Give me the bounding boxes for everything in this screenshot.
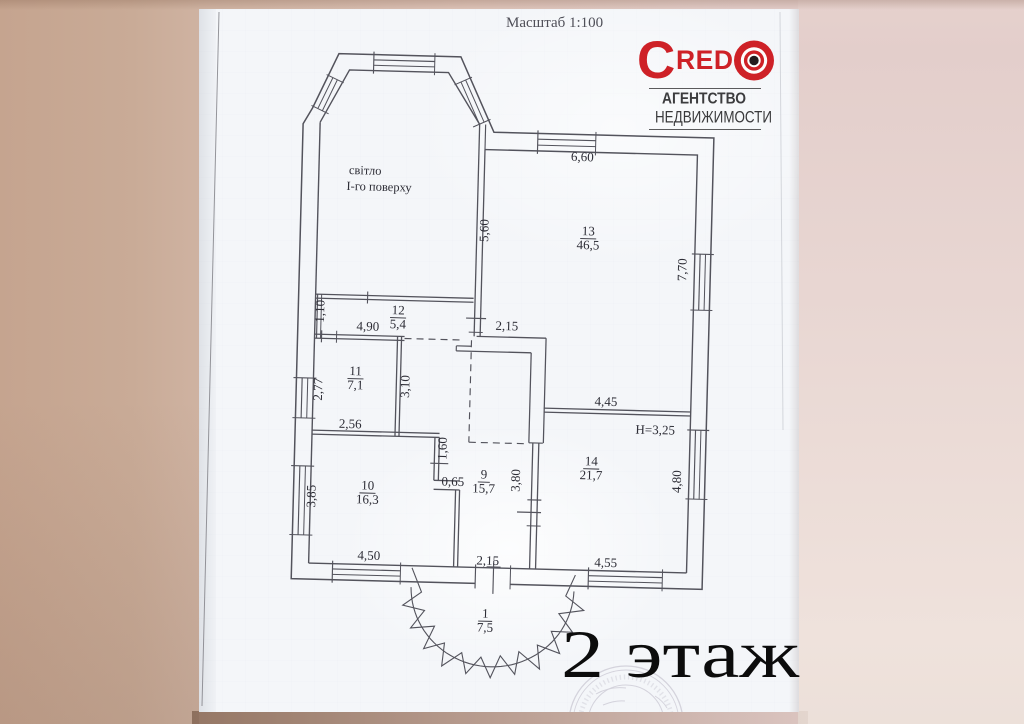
svg-text:7,70: 7,70 [674, 258, 690, 281]
svg-text:12: 12 [392, 302, 405, 317]
svg-text:0,65: 0,65 [441, 474, 464, 490]
svg-text:5,4: 5,4 [390, 316, 407, 331]
svg-text:13: 13 [582, 223, 595, 238]
svg-text:1,60: 1,60 [434, 437, 450, 460]
svg-text:C: C [637, 31, 675, 90]
svg-text:15,7: 15,7 [472, 480, 496, 496]
svg-text:4,50: 4,50 [357, 547, 380, 563]
svg-text:9: 9 [481, 467, 488, 482]
svg-text:2,77: 2,77 [310, 377, 326, 401]
svg-text:3,10: 3,10 [397, 375, 413, 398]
svg-text:6,60: 6,60 [571, 149, 594, 165]
svg-text:4,45: 4,45 [594, 393, 617, 409]
svg-text:світло: світло [349, 163, 382, 178]
svg-text:АГЕНТСТВО: АГЕНТСТВО [662, 91, 746, 108]
svg-text:3,85: 3,85 [303, 485, 319, 508]
svg-text:4,90: 4,90 [356, 318, 379, 334]
svg-text:11: 11 [349, 363, 362, 378]
svg-text:4,55: 4,55 [594, 555, 617, 571]
svg-text:RED: RED [676, 45, 733, 75]
svg-text:3,80: 3,80 [508, 469, 524, 492]
svg-text:2,56: 2,56 [339, 416, 363, 432]
svg-text:І-го поверху: І-го поверху [346, 179, 412, 195]
svg-text:10: 10 [361, 477, 374, 492]
svg-text:H=3,25: H=3,25 [635, 422, 675, 438]
svg-text:16,3: 16,3 [356, 491, 379, 507]
svg-text:7,5: 7,5 [477, 619, 494, 634]
svg-text:2,15: 2,15 [495, 318, 518, 334]
svg-text:Масштаб 1:100: Масштаб 1:100 [506, 15, 603, 31]
svg-text:1: 1 [482, 606, 489, 621]
svg-text:НЕДВИЖИМОСТИ: НЕДВИЖИМОСТИ [655, 109, 772, 127]
svg-text:5,60: 5,60 [476, 219, 492, 242]
svg-text:46,5: 46,5 [576, 237, 599, 253]
svg-text:2 этаж: 2 этаж [561, 616, 800, 692]
svg-text:7,1: 7,1 [347, 377, 364, 392]
svg-text:2,15: 2,15 [476, 552, 499, 568]
svg-text:4,80: 4,80 [669, 470, 685, 493]
svg-text:1,10: 1,10 [312, 300, 328, 323]
svg-text:21,7: 21,7 [579, 467, 603, 483]
svg-text:14: 14 [585, 453, 599, 468]
